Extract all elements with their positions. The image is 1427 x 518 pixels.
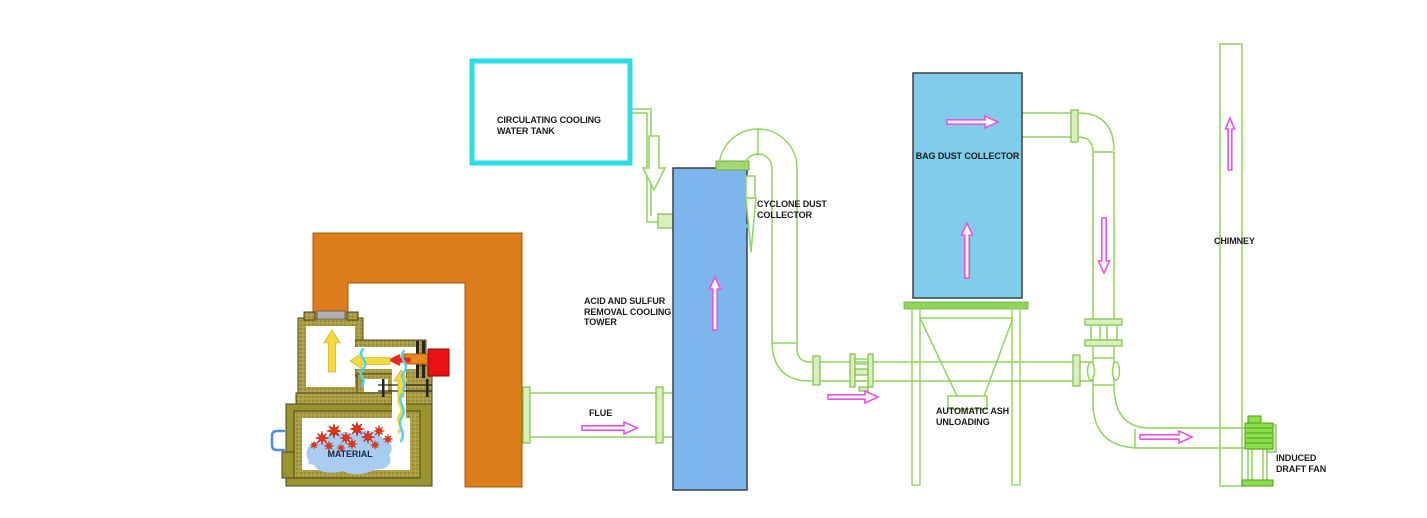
flow-right-arrow-icon: [582, 422, 637, 434]
flow-down-arrow-icon: [1099, 218, 1110, 273]
bag-outlet-piping: [1022, 110, 1246, 448]
process-flow-diagram: CIRCULATING COOLING WATER TANK ACID AND …: [0, 0, 1427, 518]
support-leg: [912, 309, 920, 485]
pipe-flange: [1073, 355, 1080, 386]
pipe-valve: [850, 354, 873, 391]
label-chimney: CHIMNEY: [1214, 236, 1284, 247]
cooling-tower: [673, 168, 747, 490]
furnace-top-cap: [317, 311, 345, 319]
diagram-canvas: [0, 0, 1427, 518]
flow-right-arrow-icon: [828, 391, 878, 403]
pipe-flange: [1071, 110, 1078, 142]
water-tank-group: [472, 61, 673, 228]
flue-flange: [656, 387, 663, 443]
label-cyclone: CYCLONE DUST COLLECTOR: [757, 199, 835, 220]
junction-boss: [1113, 362, 1120, 380]
label-bag-dust-collector: BAG DUST COLLECTOR: [913, 151, 1022, 162]
label-ash-unloading: AUTOMATIC ASH UNLOADING: [936, 406, 1024, 427]
induced-draft-fan: [1242, 416, 1276, 486]
cooling-tower-group: [673, 129, 810, 490]
label-cooling-tower: ACID AND SULFUR REMOVAL COOLING TOWER: [584, 296, 679, 328]
chimney: [1220, 44, 1242, 486]
ash-hopper: [920, 318, 1013, 409]
vertical-pipe-valve: [1085, 319, 1122, 346]
fan-motor: [1245, 423, 1273, 449]
burner-box: [428, 349, 449, 376]
fan-base: [1242, 480, 1273, 486]
pipe-elbow: [1078, 113, 1114, 151]
flue-flange: [523, 387, 530, 443]
support-leg: [1012, 309, 1020, 485]
furnace: [272, 311, 449, 486]
flow-up-arrow-icon: [1226, 118, 1235, 170]
furnace-door-handle: [272, 431, 285, 450]
cyclone-body: [746, 176, 755, 198]
support-beam: [904, 302, 1028, 309]
label-flue: FLUE: [589, 408, 634, 419]
tank-tower-connector: [658, 214, 673, 228]
label-induced-draft-fan: INDUCED DRAFT FAN: [1276, 453, 1342, 474]
pipe-flange: [813, 356, 820, 385]
label-material: MATERIAL: [324, 449, 376, 460]
water-tank: [472, 61, 630, 163]
label-water-tank: CIRCULATING COOLING WATER TANK: [497, 115, 607, 136]
junction-boss: [1088, 362, 1095, 380]
flow-right-arrow-icon: [1140, 431, 1192, 443]
fan-stand: [1248, 449, 1267, 481]
